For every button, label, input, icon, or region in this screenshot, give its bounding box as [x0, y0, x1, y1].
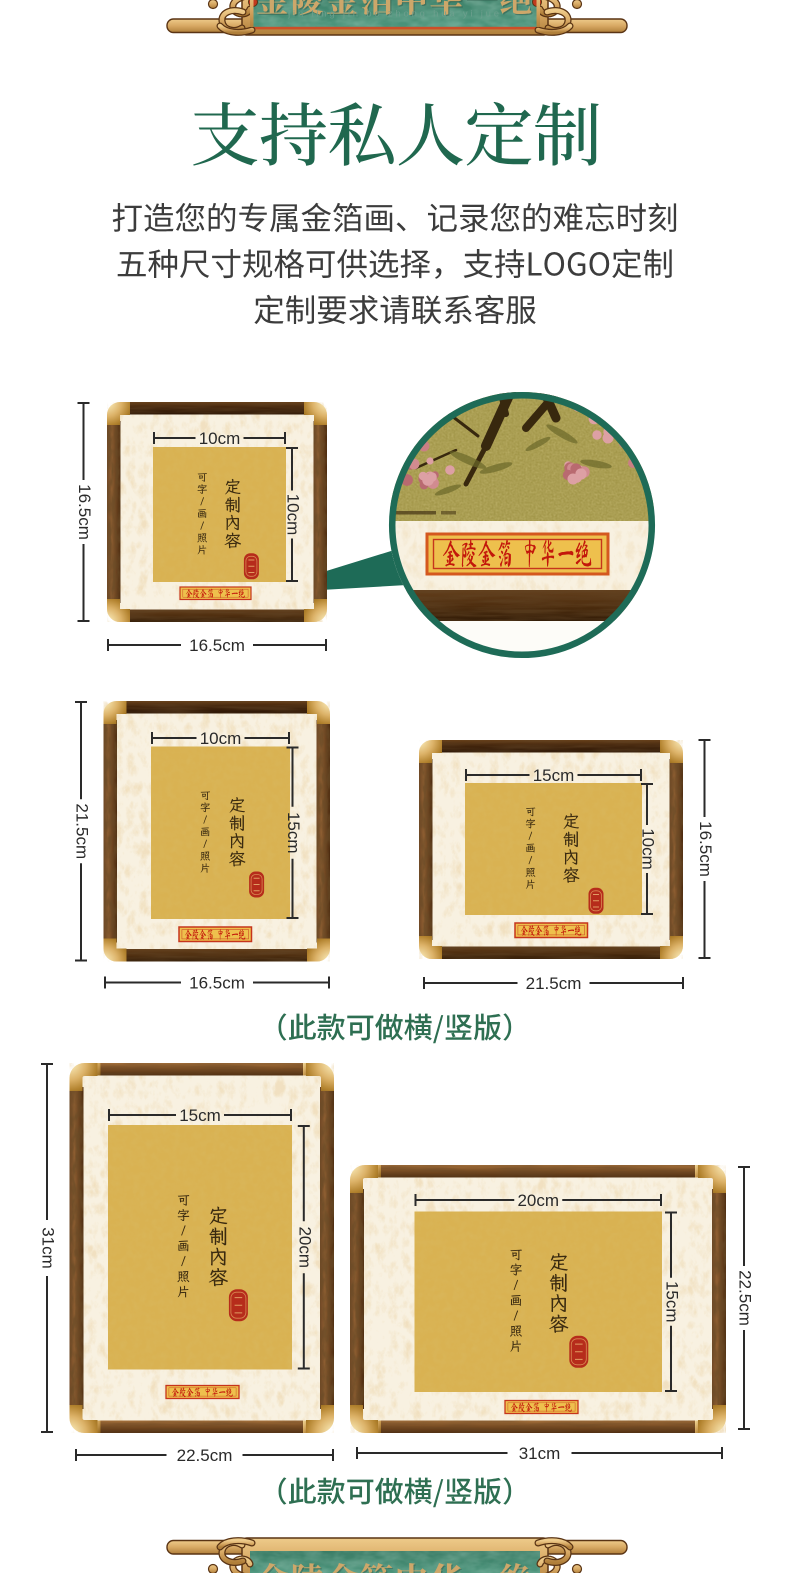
svg-text:22.5cm: 22.5cm	[736, 1270, 755, 1326]
svg-text:15cm: 15cm	[663, 1281, 682, 1323]
svg-text:16.5cm: 16.5cm	[189, 974, 245, 993]
svg-text:21.5cm: 21.5cm	[526, 974, 582, 993]
svg-text:31cm: 31cm	[519, 1444, 561, 1463]
svg-text:21.5cm: 21.5cm	[73, 803, 92, 859]
svg-text:15cm: 15cm	[284, 812, 303, 854]
svg-text:10cm: 10cm	[199, 429, 241, 448]
svg-text:10cm: 10cm	[284, 494, 303, 536]
svg-text:10cm: 10cm	[200, 729, 242, 748]
svg-text:20cm: 20cm	[295, 1226, 314, 1268]
svg-text:16.5cm: 16.5cm	[696, 821, 715, 877]
svg-text:22.5cm: 22.5cm	[177, 1446, 233, 1465]
svg-text:15cm: 15cm	[179, 1106, 221, 1125]
svg-text:jin ling jin bo zhong hua yi j: jin ling jin bo zhong hua yi jue	[287, 9, 502, 20]
svg-text:10cm: 10cm	[639, 828, 658, 870]
svg-text:20cm: 20cm	[517, 1191, 559, 1210]
svg-text:16.5cm: 16.5cm	[189, 636, 245, 655]
svg-text:15cm: 15cm	[533, 766, 575, 785]
svg-text:16.5cm: 16.5cm	[75, 484, 94, 540]
svg-text:31cm: 31cm	[39, 1227, 58, 1269]
